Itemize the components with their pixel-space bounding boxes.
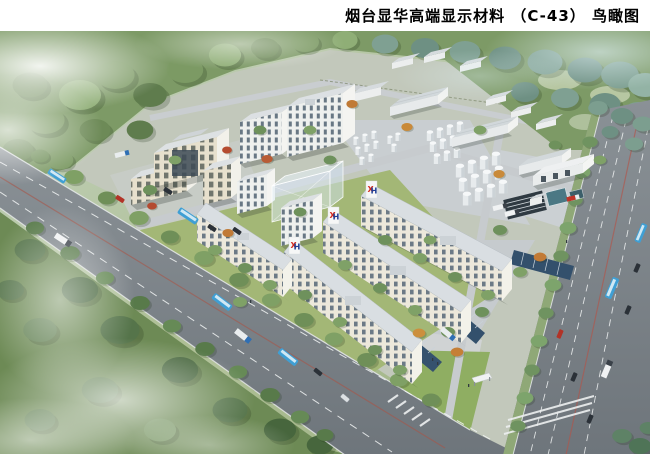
xh-logo: XH (289, 237, 300, 254)
xh-logo: XH (328, 207, 339, 224)
title-bar: 烟台显华高端显示材料 （C-43） 鸟瞰图 (0, 0, 650, 31)
page: 烟台显华高端显示材料 （C-43） 鸟瞰图 Aerial bird's-eye … (0, 0, 650, 460)
svg-text:XH: XH (291, 241, 301, 252)
page-title: 烟台显华高端显示材料 （C-43） 鸟瞰图 (345, 5, 640, 26)
xh-logo: XH (366, 181, 377, 198)
aerial-rendering: Aerial bird's-eye architectural renderin… (0, 31, 650, 454)
svg-text:XH: XH (330, 211, 340, 222)
svg-text:XH: XH (368, 185, 378, 196)
